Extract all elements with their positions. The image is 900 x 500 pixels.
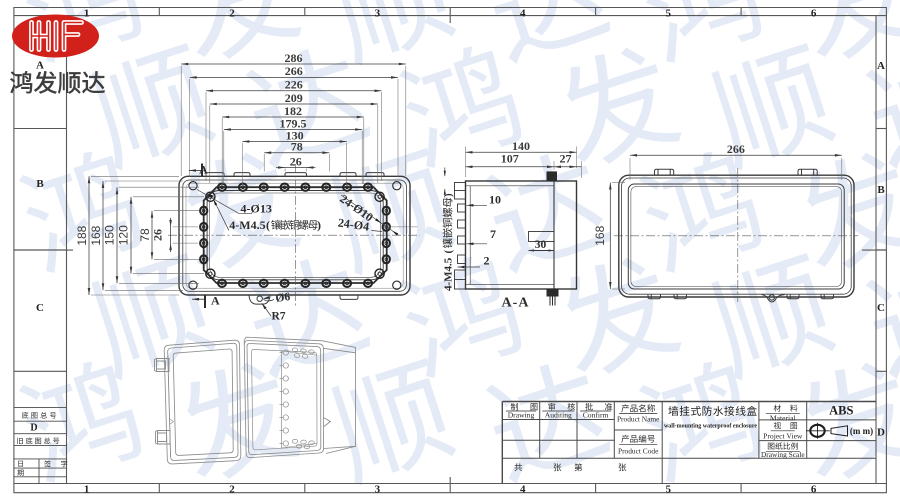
svg-text:4-M4.5: 4-M4.5 — [443, 257, 455, 291]
svg-text:120: 120 — [117, 225, 131, 245]
svg-text:A: A — [211, 294, 220, 308]
svg-text:3: 3 — [375, 7, 381, 19]
svg-text:5: 5 — [665, 7, 671, 19]
svg-text:ABS: ABS — [829, 404, 853, 418]
svg-text:2: 2 — [484, 254, 490, 268]
svg-text:266: 266 — [285, 64, 303, 78]
svg-text:209: 209 — [285, 91, 303, 105]
svg-text:7: 7 — [490, 227, 496, 241]
svg-text:6: 6 — [811, 7, 817, 19]
svg-text:D: D — [877, 427, 885, 439]
svg-text:1: 1 — [84, 483, 90, 495]
svg-text:78: 78 — [291, 140, 303, 154]
svg-text:27: 27 — [560, 151, 572, 165]
svg-text:5: 5 — [665, 483, 671, 495]
svg-text:1: 1 — [84, 7, 90, 19]
svg-text:30: 30 — [535, 239, 547, 251]
svg-text:B: B — [877, 184, 885, 196]
svg-text:A: A — [199, 163, 208, 177]
svg-text:6: 6 — [811, 483, 817, 495]
svg-text:Drawing: Drawing — [508, 410, 535, 419]
svg-text:(: ( — [443, 250, 455, 254]
svg-text:4: 4 — [520, 7, 526, 19]
svg-text:168: 168 — [593, 225, 607, 245]
svg-text:B: B — [36, 178, 44, 190]
svg-text:C: C — [36, 302, 44, 314]
svg-text:4: 4 — [520, 483, 526, 495]
svg-text:(: ( — [266, 218, 270, 232]
svg-text:R7: R7 — [272, 311, 286, 323]
svg-text:266: 266 — [727, 142, 745, 156]
svg-text:286: 286 — [285, 51, 303, 65]
svg-text:Auditing: Auditing — [545, 410, 572, 419]
svg-text:3: 3 — [375, 483, 381, 495]
svg-text:Product Name: Product Name — [617, 415, 660, 424]
svg-text:4-Ø13: 4-Ø13 — [241, 202, 272, 216]
svg-text:107: 107 — [501, 151, 519, 165]
svg-text:A: A — [877, 60, 885, 72]
svg-text:wall-mounting waterproof enclo: wall-mounting waterproof enclosure — [664, 424, 757, 430]
svg-text:226: 226 — [285, 78, 303, 92]
svg-text:(m m): (m m) — [850, 426, 873, 436]
svg-text:Drawing Scale: Drawing Scale — [761, 450, 805, 459]
svg-text:Material: Material — [770, 414, 796, 423]
svg-text:Project View: Project View — [763, 432, 803, 441]
svg-text:188: 188 — [75, 225, 89, 245]
svg-text:): ) — [317, 218, 321, 232]
svg-text:168: 168 — [89, 225, 103, 245]
svg-text:Product Code: Product Code — [618, 447, 659, 456]
svg-text:26: 26 — [290, 154, 302, 168]
svg-text:4-M4.5: 4-M4.5 — [229, 218, 265, 232]
svg-text:Ø6: Ø6 — [275, 291, 291, 305]
svg-text:2: 2 — [229, 7, 235, 19]
svg-text:26: 26 — [151, 229, 165, 241]
svg-text:2: 2 — [229, 483, 235, 495]
svg-text:D: D — [30, 423, 37, 434]
svg-text:Confirm: Confirm — [583, 410, 609, 419]
svg-text:A: A — [36, 60, 44, 72]
svg-text:10: 10 — [489, 193, 501, 207]
svg-text:C: C — [877, 302, 885, 314]
svg-text:150: 150 — [103, 225, 117, 245]
svg-text:A-A: A-A — [502, 296, 530, 311]
